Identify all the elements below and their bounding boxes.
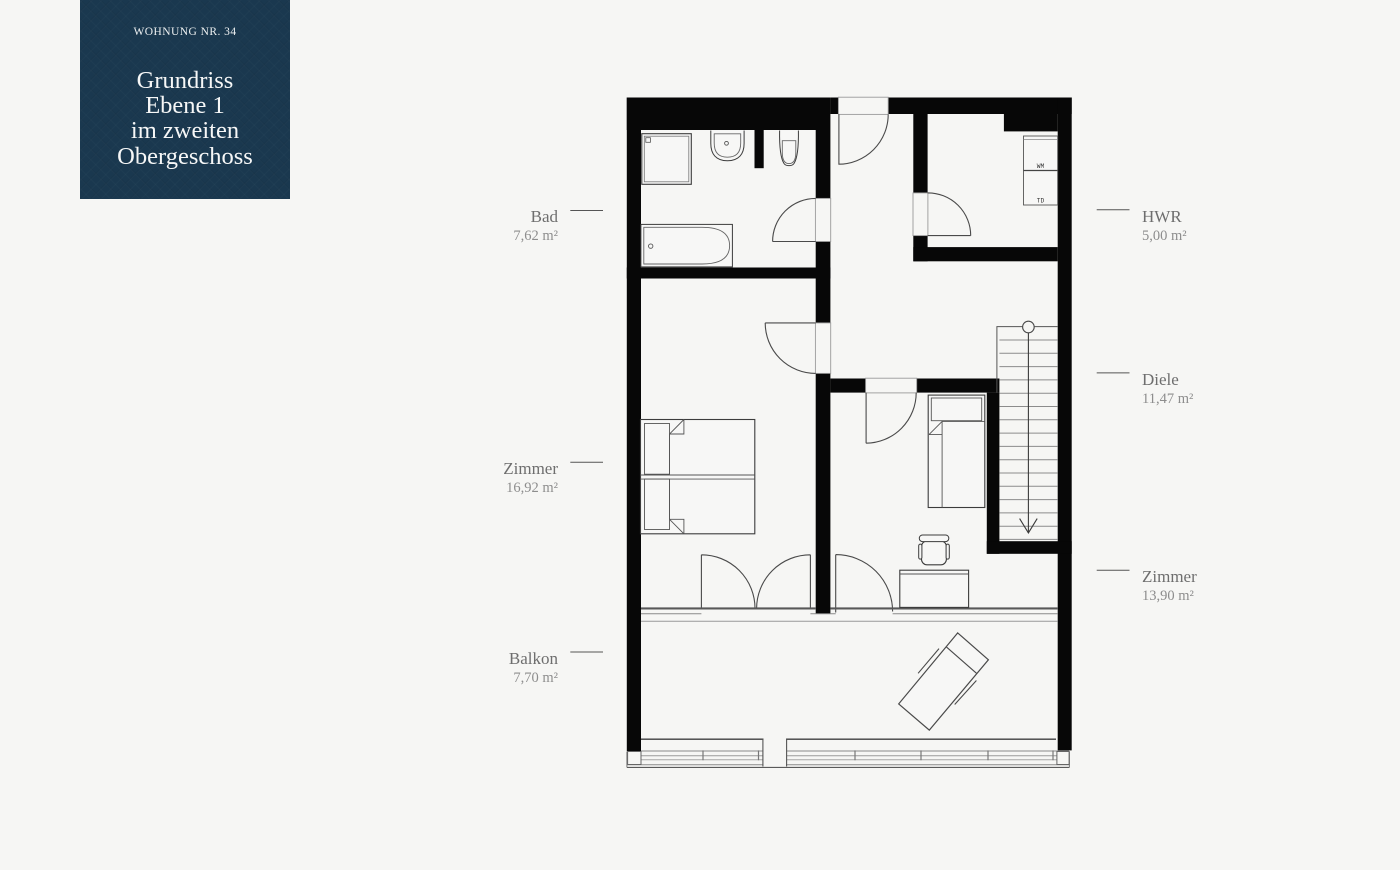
- svg-text:WM: WM: [1037, 163, 1045, 170]
- svg-text:TD: TD: [1037, 198, 1045, 205]
